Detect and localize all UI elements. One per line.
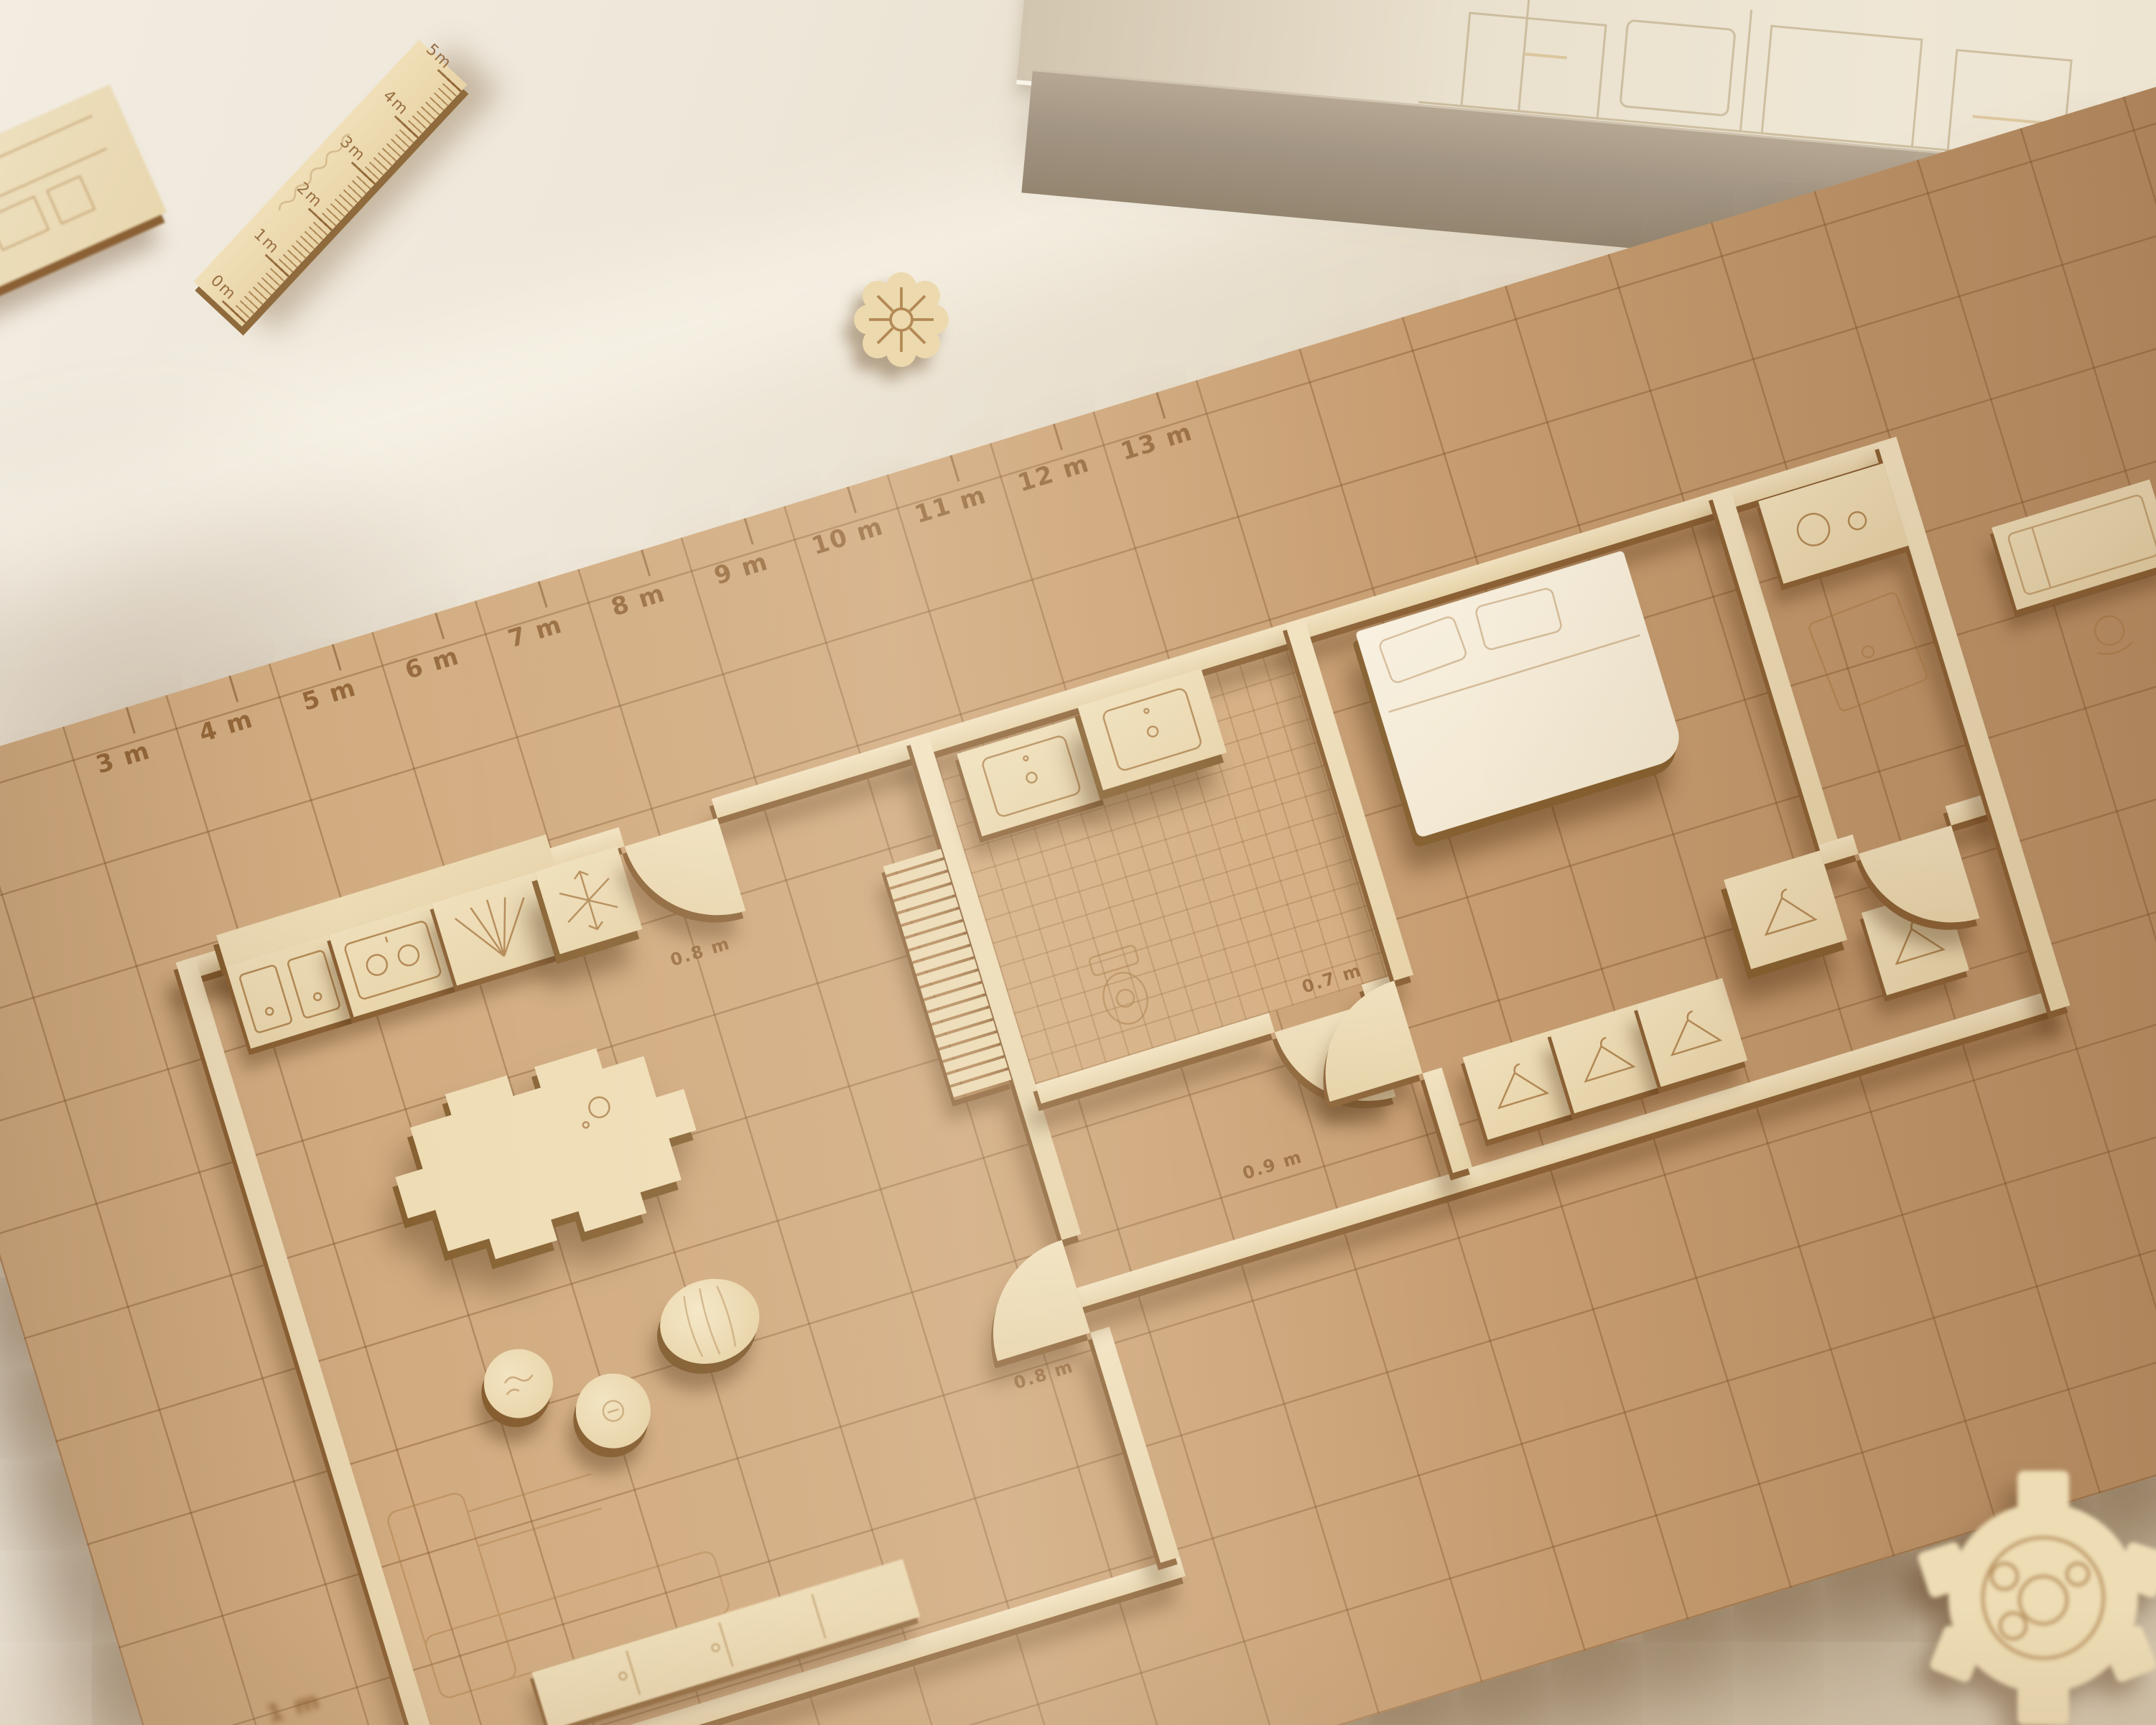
ruler-major-ticks [222, 67, 465, 324]
barrel-rib-engraving [649, 1267, 770, 1376]
edge-label-11m: 11 m [911, 480, 990, 529]
board-lighting-overlay [0, 0, 2156, 1725]
photo-scene: 0m 1m 2m 3m 4m 5m [0, 0, 2156, 1725]
pouf-engraving [475, 1341, 562, 1427]
tick-8m [641, 549, 651, 576]
bathroom-door-label: 0.9 m [1240, 1146, 1305, 1184]
pouf-small-a [475, 1341, 562, 1427]
round-table-piece [1914, 1469, 2156, 1725]
tick-13m [1156, 392, 1166, 419]
model-board: 3 m 4 m 5 m 6 m 7 m 8 m 9 m 10 m 11 m 12… [0, 0, 2156, 1725]
ruler-label-0m: 0m [207, 271, 240, 304]
edge-label-6m: 6 m [401, 641, 463, 685]
edge-label-12m: 12 m [1014, 449, 1093, 498]
ruler-minor-ticks [231, 75, 465, 323]
edge-label-9m: 9 m [711, 547, 772, 591]
edge-label-3m: 3 m [93, 736, 154, 780]
ruler-label-4m: 4m [379, 87, 412, 119]
edge-label-10m: 10 m [808, 512, 887, 561]
entry-door-arc [625, 818, 746, 939]
tick-11m [949, 455, 959, 482]
pouf-engraving-b [567, 1364, 660, 1458]
dining-table-piece [350, 1000, 743, 1307]
edge-label-1m-left: 1 m [263, 1686, 324, 1725]
desk-piece [1992, 480, 2156, 610]
toilet-engraving [1072, 936, 1173, 1041]
edge-label-8m: 8 m [608, 579, 669, 623]
ruler-label-1m: 1m [250, 225, 283, 258]
entry-door-label: 0.8 m [668, 933, 733, 970]
edge-label-13m: 13 m [1118, 417, 1197, 466]
bedroom-door-label: 0.7 m [1299, 960, 1364, 998]
tick-6m [435, 613, 445, 639]
pillow-engraving-left [1378, 615, 1468, 684]
edge-label-7m: 7 m [505, 610, 566, 654]
edge-label-4m: 4 m [195, 705, 256, 748]
shower-engraving [1800, 585, 1935, 719]
pouf-barrel [649, 1267, 770, 1376]
tick-12m [1053, 424, 1063, 450]
ruler-label-3m: 3m [336, 133, 369, 165]
tick-10m [847, 487, 857, 513]
living-door-label: 0.8 m [1011, 1356, 1076, 1393]
corner-piece [0, 84, 167, 297]
chair-engraving [2069, 590, 2150, 671]
corner-piece-engraving [0, 84, 167, 297]
hanger-icon-4 [1724, 850, 1847, 969]
tick-4m [228, 676, 238, 702]
wall-bedroom-left-b [1423, 1067, 1472, 1173]
plant-scallop-icon [847, 266, 955, 373]
round-table-chairs-shape [1914, 1469, 2156, 1725]
tick-9m [744, 518, 754, 544]
ruler-label-2m: 2m [293, 180, 326, 212]
ruler-label-5m: 5m [422, 40, 455, 73]
wardrobe-corner-block [1724, 850, 1847, 969]
edge-label-5m: 5 m [299, 673, 360, 717]
wall-living-right-b [1090, 1327, 1180, 1563]
tick-3m [126, 707, 136, 734]
plant-piece-loose [847, 266, 955, 373]
scale-ruler: 0m 1m 2m 3m 4m 5m [193, 39, 467, 326]
pouf-small-b [567, 1364, 660, 1458]
tick-7m [538, 581, 548, 608]
living-door-arc [969, 1240, 1090, 1362]
desk-engraving [1992, 480, 2156, 610]
tick-5m [332, 644, 342, 671]
wall-bath-bottom-a [1036, 1013, 1275, 1104]
pillow-engraving-right [1474, 587, 1562, 651]
dining-table-shape [376, 1027, 715, 1280]
